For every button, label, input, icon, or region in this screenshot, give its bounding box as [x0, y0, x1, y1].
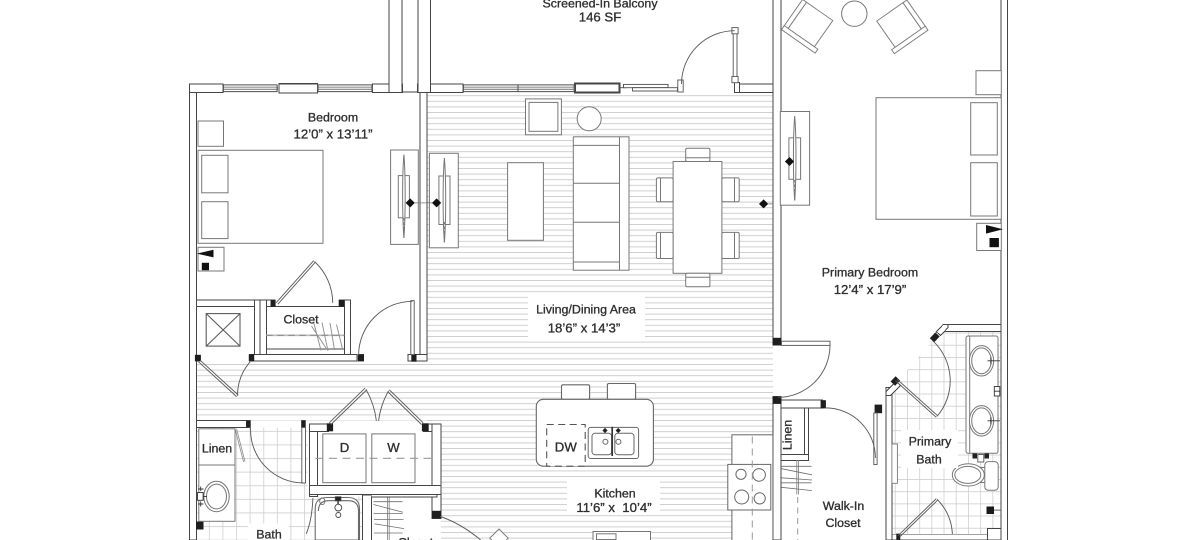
svg-text:Primary Bedroom: Primary Bedroom — [822, 266, 918, 280]
svg-text:Primary: Primary — [909, 435, 952, 449]
svg-text:12’4” x 17’9”: 12’4” x 17’9” — [834, 282, 907, 297]
svg-text:Linen: Linen — [781, 420, 795, 450]
svg-text:W: W — [387, 440, 400, 455]
svg-text:Closet: Closet — [283, 313, 319, 327]
svg-text:D: D — [340, 440, 350, 455]
svg-text:DW: DW — [555, 440, 578, 455]
svg-text:11’6” x 10’4”: 11’6” x 10’4” — [576, 500, 651, 515]
svg-text:Linen: Linen — [202, 442, 232, 456]
svg-text:Closet: Closet — [825, 516, 861, 530]
svg-text:146 SF: 146 SF — [579, 10, 622, 25]
svg-text:12’0” x 13’11”: 12’0” x 13’11” — [294, 127, 373, 142]
svg-text:Bath: Bath — [256, 528, 282, 540]
svg-text:18’6” x 14’3”: 18’6” x 14’3” — [548, 321, 621, 336]
svg-text:Closet: Closet — [398, 536, 434, 540]
svg-text:Bedroom: Bedroom — [308, 111, 358, 125]
svg-text:Bath: Bath — [916, 453, 942, 467]
svg-text:Kitchen: Kitchen — [594, 487, 635, 501]
svg-text:Living/Dining Area: Living/Dining Area — [536, 303, 636, 317]
svg-text:Walk-In: Walk-In — [823, 499, 865, 513]
